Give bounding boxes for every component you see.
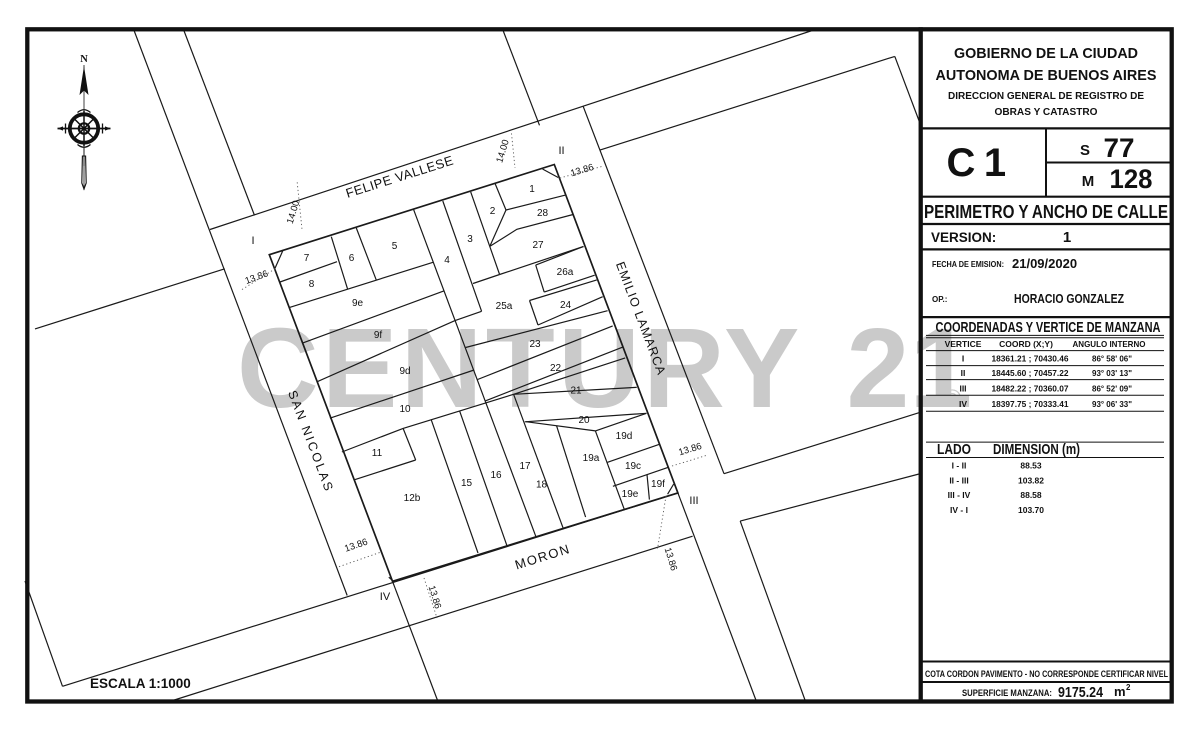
svg-text:COORD (X;Y): COORD (X;Y) [999,339,1053,349]
svg-text:SUPERFICIE MANZANA:: SUPERFICIE MANZANA: [962,688,1052,699]
svg-text:18361.21 ; 70430.46: 18361.21 ; 70430.46 [992,354,1069,364]
svg-text:III: III [959,384,966,394]
svg-text:PERIMETRO Y ANCHO DE CALLE: PERIMETRO Y ANCHO DE CALLE [924,201,1168,222]
svg-text:93° 03' 13": 93° 03' 13" [1092,368,1132,378]
svg-text:128: 128 [1110,164,1153,194]
svg-text:18397.75 ; 70333.41: 18397.75 ; 70333.41 [992,399,1069,409]
svg-text:S: S [1080,142,1090,159]
svg-text:1: 1 [984,141,1006,185]
svg-text:103.70: 103.70 [1018,505,1044,515]
svg-text:18482.22 ; 70360.07: 18482.22 ; 70360.07 [992,384,1069,394]
svg-text:FECHA DE EMISION:: FECHA DE EMISION: [932,259,1004,269]
svg-text:21/09/2020: 21/09/2020 [1012,256,1077,271]
svg-text:AUTONOMA DE BUENOS AIRES: AUTONOMA DE BUENOS AIRES [936,67,1157,84]
svg-text:COORDENADAS Y VERTICE DE MANZA: COORDENADAS Y VERTICE DE MANZANA [936,320,1161,336]
svg-text:II: II [961,368,966,378]
svg-text:HORACIO GONZALEZ: HORACIO GONZALEZ [1014,291,1124,306]
svg-text:DIRECCION GENERAL DE REGISTRO: DIRECCION GENERAL DE REGISTRO DE [948,90,1144,102]
svg-text:103.82: 103.82 [1018,476,1044,486]
svg-text:OBRAS Y CATASTRO: OBRAS Y CATASTRO [995,106,1098,118]
svg-text:I - II: I - II [952,461,967,471]
svg-text:IV: IV [959,399,967,409]
svg-text:COTA CORDON PAVIMENTO - NO COR: COTA CORDON PAVIMENTO - NO CORRESPONDE C… [925,669,1168,679]
svg-text:88.53: 88.53 [1020,461,1042,471]
svg-text:18445.60 ; 70457.22: 18445.60 ; 70457.22 [992,368,1069,378]
svg-text:86° 58' 06": 86° 58' 06" [1092,354,1132,364]
svg-text:VERTICE: VERTICE [945,339,982,349]
svg-text:IV - I: IV - I [950,505,968,515]
svg-text:VERSION:: VERSION: [931,230,996,245]
svg-text:9175.24: 9175.24 [1058,685,1103,701]
svg-text:LADO: LADO [937,441,971,458]
svg-text:86° 52' 09": 86° 52' 09" [1092,384,1132,394]
svg-text:OP.:: OP.: [932,295,947,304]
svg-text:M: M [1082,173,1095,190]
svg-text:GOBIERNO DE LA CIUDAD: GOBIERNO DE LA CIUDAD [954,45,1138,62]
svg-text:DIMENSION (m): DIMENSION (m) [993,441,1080,458]
svg-text:93° 06' 33": 93° 06' 33" [1092,399,1132,409]
svg-text:I: I [962,354,964,364]
svg-text:C: C [947,141,976,185]
svg-text:2: 2 [1126,683,1131,692]
svg-text:1: 1 [1063,229,1071,246]
svg-text:II - III: II - III [949,476,968,486]
svg-text:III - IV: III - IV [948,490,971,500]
svg-text:ANGULO INTERNO: ANGULO INTERNO [1073,339,1146,349]
svg-text:88.58: 88.58 [1020,490,1042,500]
svg-text:m: m [1114,684,1126,699]
svg-text:77: 77 [1104,133,1135,163]
